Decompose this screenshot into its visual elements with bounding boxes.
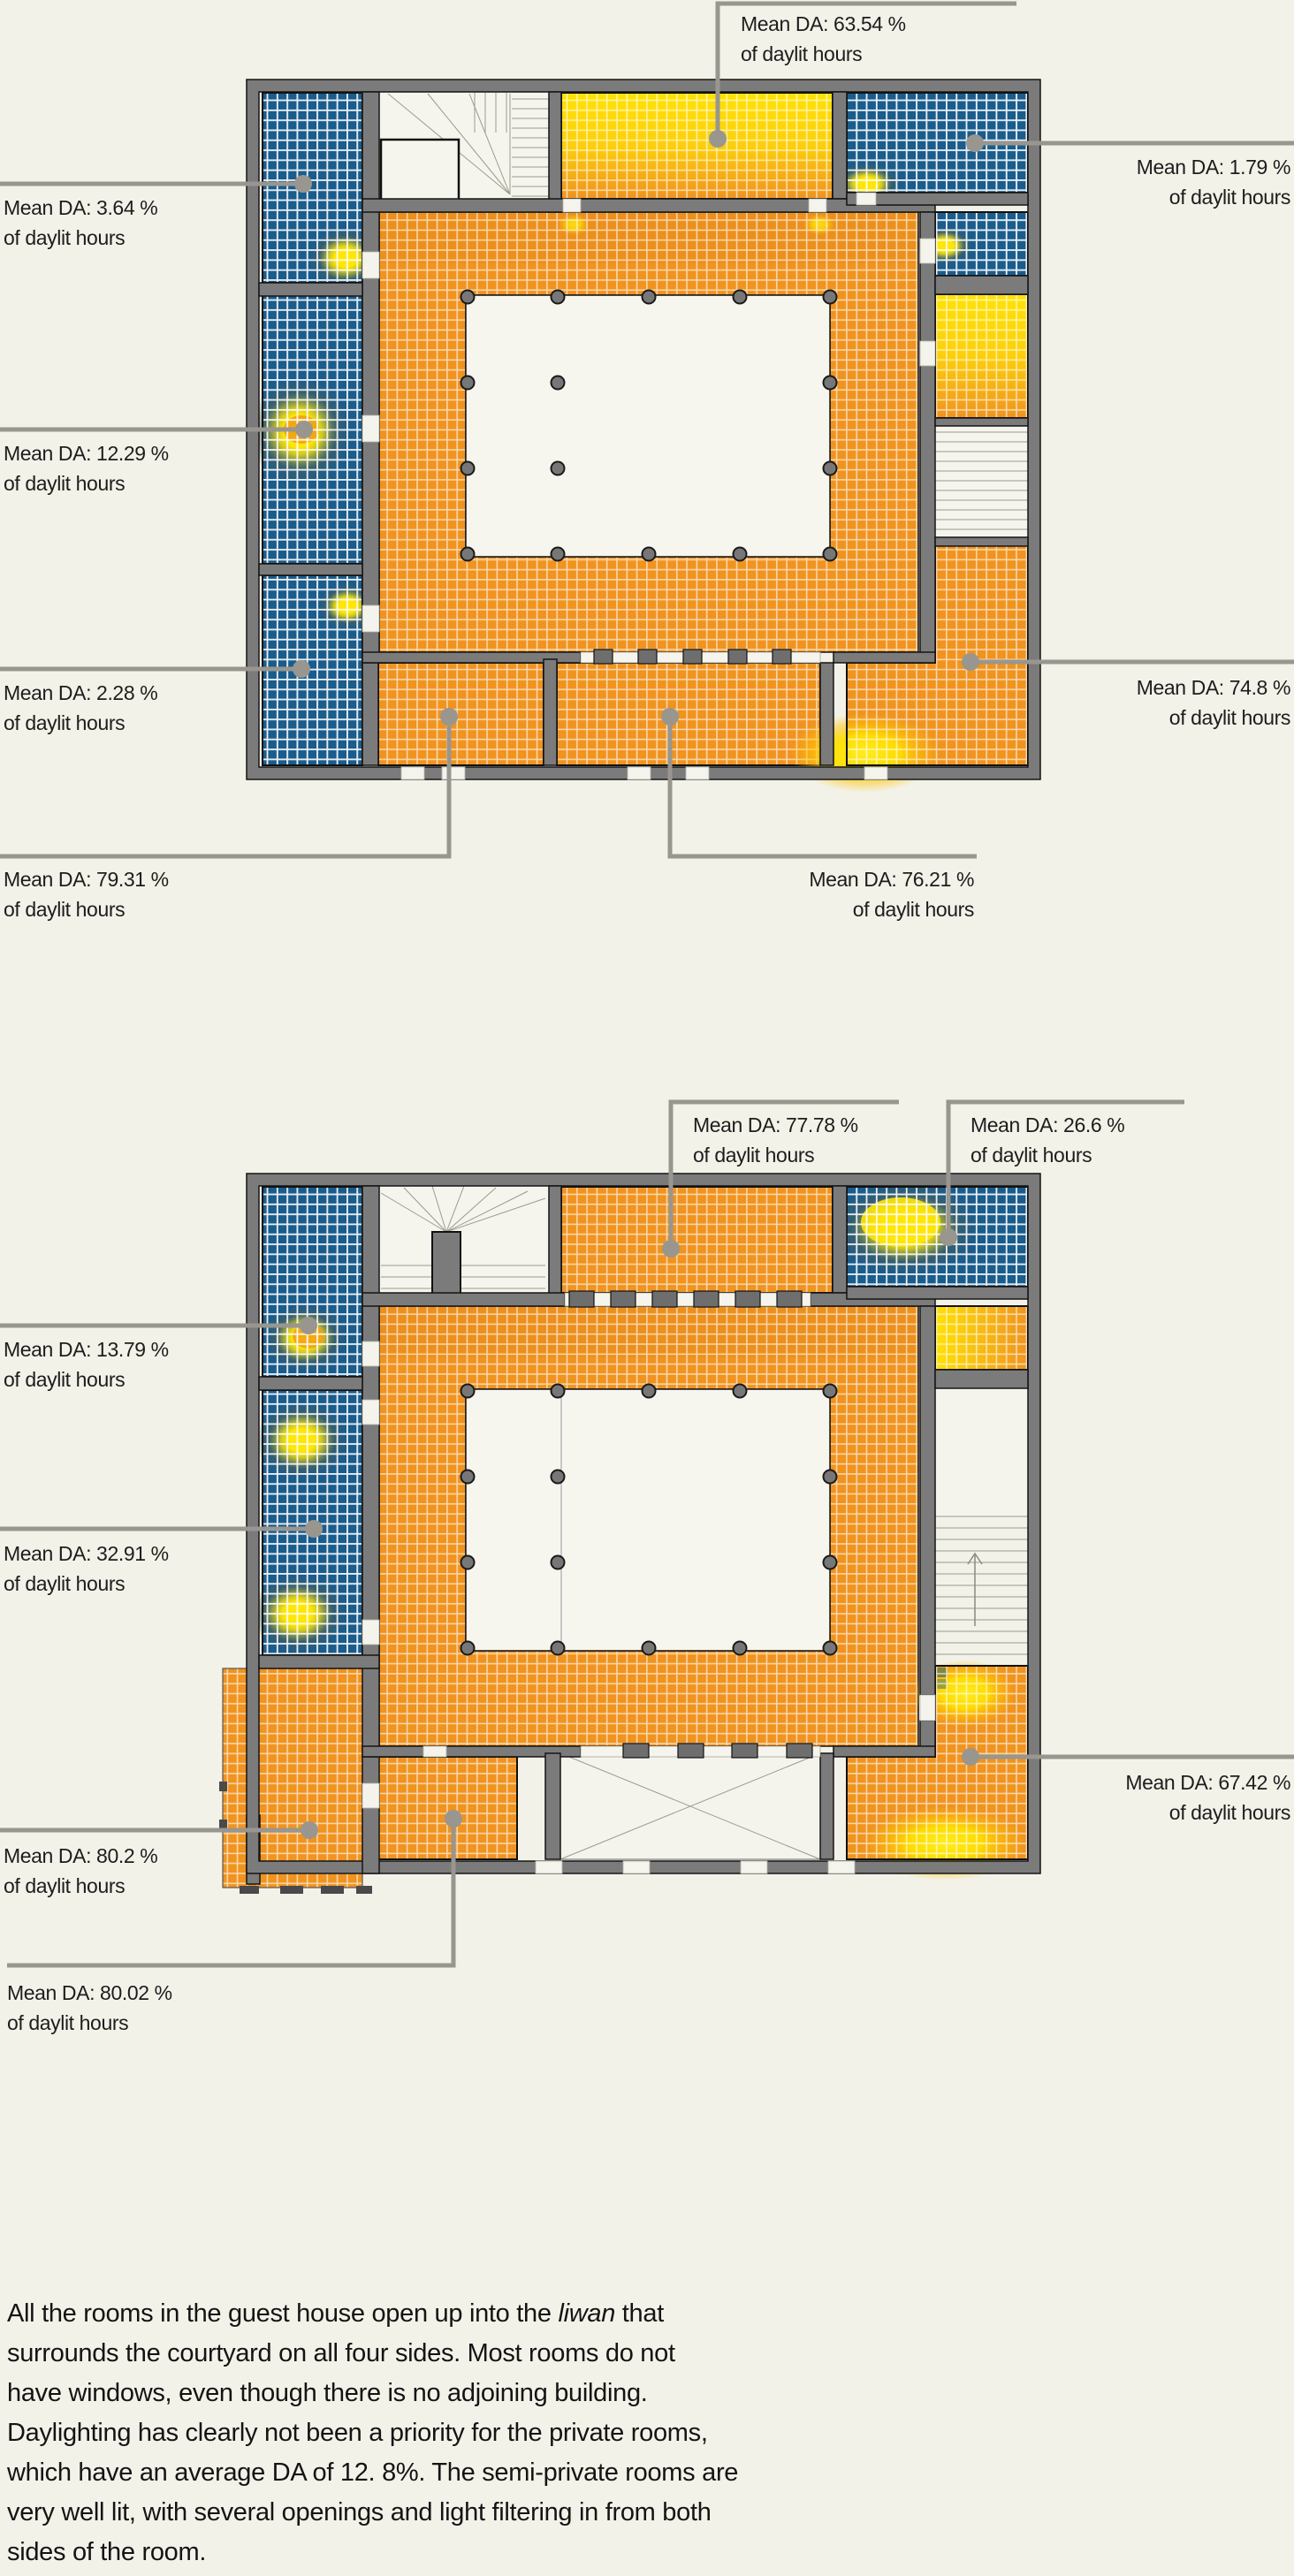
figure-canvas: { "figure": { "annotation_suffix": "of d… — [0, 0, 1294, 2576]
caption-italic-term: liwan — [558, 2299, 615, 2328]
caption-line: All the rooms in the guest house open up… — [7, 2294, 738, 2334]
annotation-value: Mean DA: 80.2 % — [4, 1841, 157, 1871]
annotation-value: Mean DA: 77.78 % — [693, 1110, 858, 1140]
room-right-yellow — [935, 294, 1028, 418]
room-top-center — [561, 93, 833, 199]
annotation-value: Mean DA: 67.42 % — [1125, 1767, 1290, 1797]
annotation-suffix: of daylit hours — [809, 894, 974, 924]
room-bottom-left-annex — [219, 1668, 372, 1894]
annotation-value: Mean DA: 3.64 % — [4, 193, 157, 223]
annotation-suffix: of daylit hours — [1137, 182, 1290, 212]
figure-caption: All the rooms in the guest house open up… — [7, 2294, 738, 2572]
annotation-value: Mean DA: 13.79 % — [4, 1334, 169, 1364]
caption-text: All the rooms in the guest house open up… — [7, 2299, 558, 2328]
annotation-da-2-28: Mean DA: 2.28 % of daylit hours — [4, 678, 157, 738]
annotation-suffix: of daylit hours — [4, 1364, 169, 1394]
annotation-value: Mean DA: 80.02 % — [7, 1978, 172, 2008]
annotation-value: Mean DA: 2.28 % — [4, 678, 157, 708]
stairs-right — [935, 422, 1028, 537]
annotation-value: Mean DA: 1.79 % — [1137, 152, 1290, 182]
caption-line: sides of the room. — [7, 2533, 738, 2572]
annotation-suffix: of daylit hours — [7, 2008, 172, 2038]
caption-line: surrounds the courtyard on all four side… — [7, 2334, 738, 2374]
annotation-da-76-21: Mean DA: 76.21 % of daylit hours — [809, 864, 974, 924]
annotation-da-3-64: Mean DA: 3.64 % of daylit hours — [4, 193, 157, 253]
annotation-da-77-78: Mean DA: 77.78 % of daylit hours — [693, 1110, 858, 1170]
caption-line: very well lit, with several openings and… — [7, 2493, 738, 2533]
floor-plan-upper — [247, 80, 1040, 779]
void-room-x — [560, 1753, 820, 1859]
stairs-right-void — [935, 1388, 1028, 1654]
annotation-da-80-02: Mean DA: 80.02 % of daylit hours — [7, 1978, 172, 2038]
floor-plan-lower — [247, 1174, 1040, 1873]
annotation-value: Mean DA: 79.31 % — [4, 864, 169, 894]
annotation-suffix: of daylit hours — [741, 39, 906, 69]
room-bottom-left — [378, 663, 544, 765]
room-left-3 — [263, 575, 377, 765]
annotation-da-74-8: Mean DA: 74.8 % of daylit hours — [1137, 672, 1290, 733]
annotation-da-12-29: Mean DA: 12.29 % of daylit hours — [4, 438, 169, 498]
caption-text: that — [615, 2299, 664, 2328]
annotation-da-67-42: Mean DA: 67.42 % of daylit hours — [1125, 1767, 1290, 1828]
annotation-value: Mean DA: 63.54 % — [741, 9, 906, 39]
annotation-da-80-2: Mean DA: 80.2 % of daylit hours — [4, 1841, 157, 1901]
annotation-value: Mean DA: 26.6 % — [970, 1110, 1124, 1140]
room-right-small-orange — [935, 1306, 1028, 1370]
annotation-da-79-31: Mean DA: 79.31 % of daylit hours — [4, 864, 169, 924]
caption-line: have windows, even though there is no ad… — [7, 2374, 738, 2413]
annotation-suffix: of daylit hours — [4, 1871, 157, 1901]
room-left-2 — [248, 294, 362, 564]
annotation-da-32-91: Mean DA: 32.91 % of daylit hours — [4, 1539, 169, 1599]
annotation-da-26-6: Mean DA: 26.6 % of daylit hours — [970, 1110, 1124, 1170]
annotation-suffix: of daylit hours — [4, 468, 169, 498]
stairwell — [377, 89, 549, 212]
annotation-value: Mean DA: 32.91 % — [4, 1539, 169, 1569]
annotation-suffix: of daylit hours — [4, 223, 157, 253]
room-bottom-80-02 — [378, 1757, 517, 1859]
caption-line: which have an average DA of 12. 8%. The … — [7, 2453, 738, 2493]
annotation-suffix: of daylit hours — [693, 1140, 858, 1170]
annotation-value: Mean DA: 12.29 % — [4, 438, 169, 468]
annotation-suffix: of daylit hours — [970, 1140, 1124, 1170]
room-bottom-center — [557, 663, 820, 765]
room-top-center — [561, 1187, 833, 1293]
annotation-value: Mean DA: 74.8 % — [1137, 672, 1290, 703]
colonnade-strip-top — [565, 1293, 811, 1306]
caption-line: Daylighting has clearly not been a prior… — [7, 2413, 738, 2453]
annotation-da-1-79: Mean DA: 1.79 % of daylit hours — [1137, 152, 1290, 212]
room-top-right — [833, 93, 1028, 205]
annotation-da-63-54: Mean DA: 63.54 % of daylit hours — [741, 9, 906, 69]
annotation-da-13-79: Mean DA: 13.79 % of daylit hours — [4, 1334, 169, 1394]
courtyard — [466, 1389, 830, 1651]
annotation-suffix: of daylit hours — [1125, 1797, 1290, 1828]
annotation-suffix: of daylit hours — [4, 894, 169, 924]
annotation-suffix: of daylit hours — [4, 1569, 169, 1599]
courtyard — [466, 295, 830, 557]
annotation-suffix: of daylit hours — [1137, 703, 1290, 733]
room-left-2 — [250, 1390, 362, 1655]
room-top-right — [833, 1182, 1028, 1287]
room-left-1 — [263, 1187, 362, 1377]
annotation-suffix: of daylit hours — [4, 708, 157, 738]
annotation-value: Mean DA: 76.21 % — [809, 864, 974, 894]
